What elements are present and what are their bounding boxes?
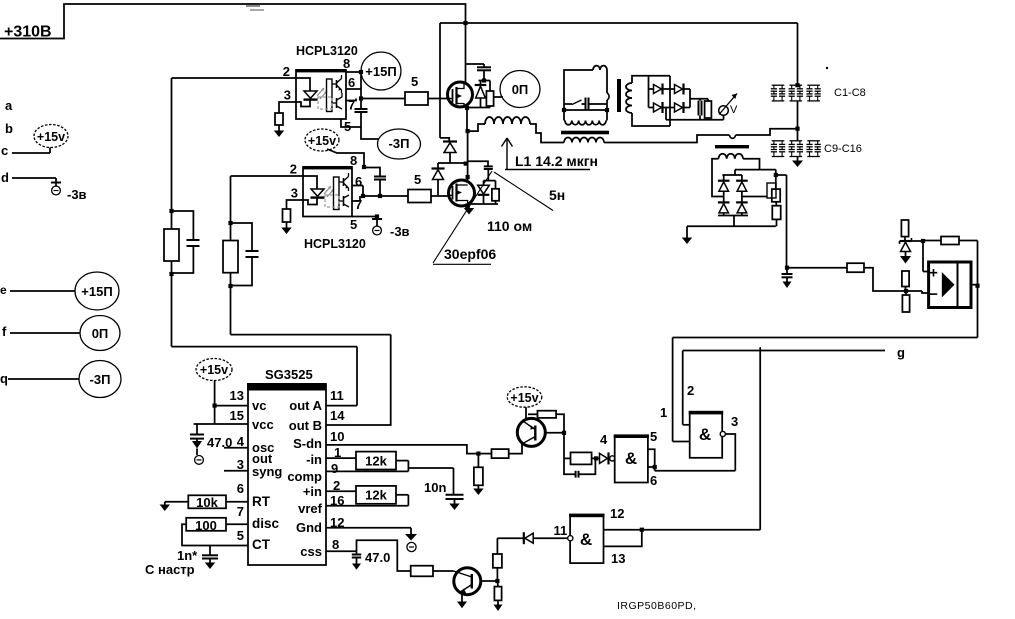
svg-text:b: b bbox=[5, 121, 13, 136]
svg-text:1: 1 bbox=[660, 405, 667, 420]
svg-text:11: 11 bbox=[554, 523, 568, 538]
svg-text:d: d bbox=[1, 170, 9, 185]
svg-text:2: 2 bbox=[283, 64, 290, 79]
svg-text:HCPL3120: HCPL3120 bbox=[304, 237, 366, 251]
svg-text:14: 14 bbox=[330, 408, 345, 423]
svg-text:&: & bbox=[625, 449, 637, 468]
svg-text:8: 8 bbox=[350, 153, 357, 168]
svg-text:12k: 12k bbox=[365, 454, 387, 469]
svg-text:SG3525: SG3525 bbox=[265, 367, 313, 382]
svg-text:V: V bbox=[730, 104, 738, 116]
svg-text:-3в: -3в bbox=[390, 224, 410, 239]
svg-text:-3П: -3П bbox=[90, 372, 111, 387]
svg-text:f: f bbox=[2, 324, 7, 339]
svg-text:+in: +in bbox=[303, 484, 322, 499]
svg-text:6: 6 bbox=[355, 174, 362, 189]
svg-text:comp: comp bbox=[287, 469, 322, 484]
svg-text:RT: RT bbox=[252, 494, 271, 509]
svg-text:+15v: +15v bbox=[200, 363, 228, 377]
svg-text:syng: syng bbox=[252, 464, 282, 479]
svg-text:3: 3 bbox=[237, 457, 244, 472]
svg-text:g: g bbox=[897, 345, 905, 360]
svg-text:Gnd: Gnd bbox=[296, 520, 322, 535]
svg-text:12: 12 bbox=[610, 506, 624, 521]
svg-text:4: 4 bbox=[600, 432, 608, 447]
svg-text:-3в: -3в bbox=[67, 187, 87, 202]
svg-text:8: 8 bbox=[332, 537, 339, 552]
svg-text:c: c bbox=[1, 143, 8, 158]
svg-text:13: 13 bbox=[230, 388, 244, 403]
svg-text:+15П: +15П bbox=[81, 284, 112, 299]
svg-text:3: 3 bbox=[731, 414, 738, 429]
svg-text:13: 13 bbox=[611, 551, 625, 566]
svg-text:&: & bbox=[580, 530, 592, 549]
svg-text:2: 2 bbox=[687, 383, 694, 398]
svg-text:out B: out B bbox=[289, 418, 322, 433]
svg-text:30epf06: 30epf06 bbox=[444, 246, 496, 262]
svg-text:+: + bbox=[929, 265, 938, 282]
svg-text:110 ом: 110 ом bbox=[487, 218, 532, 234]
svg-text:IRGP50B60PD,: IRGP50B60PD, bbox=[617, 600, 697, 612]
svg-text:1n*: 1n* bbox=[177, 548, 198, 563]
svg-text:+15v: +15v bbox=[37, 130, 65, 144]
svg-text:5: 5 bbox=[237, 528, 244, 543]
svg-text:css: css bbox=[300, 544, 322, 559]
svg-text:+15v: +15v bbox=[308, 134, 336, 148]
svg-text:4: 4 bbox=[237, 434, 245, 449]
svg-text:10: 10 bbox=[330, 429, 344, 444]
svg-text:С настр: С настр bbox=[145, 562, 195, 577]
svg-text:vref: vref bbox=[298, 501, 323, 516]
svg-text:5: 5 bbox=[414, 172, 421, 187]
svg-text:5: 5 bbox=[650, 429, 657, 444]
svg-text:0П: 0П bbox=[512, 82, 529, 97]
svg-text:5н: 5н bbox=[549, 187, 565, 203]
svg-text:7: 7 bbox=[355, 197, 362, 212]
svg-text:3: 3 bbox=[291, 186, 298, 201]
svg-text:L1 14.2 мкгн: L1 14.2 мкгн bbox=[515, 153, 598, 169]
svg-text:0П: 0П bbox=[92, 326, 109, 341]
svg-text:47.0: 47.0 bbox=[365, 550, 390, 565]
svg-text:3: 3 bbox=[284, 88, 291, 103]
svg-text:8: 8 bbox=[343, 56, 350, 71]
svg-text:C1-C8: C1-C8 bbox=[834, 87, 866, 99]
svg-text:disc: disc bbox=[252, 516, 280, 531]
svg-text:е: е bbox=[0, 283, 7, 297]
svg-text:15: 15 bbox=[230, 408, 244, 423]
svg-text:6: 6 bbox=[650, 473, 657, 488]
svg-text:5: 5 bbox=[411, 74, 418, 89]
svg-text:a: a bbox=[5, 98, 13, 113]
svg-text:12k: 12k bbox=[365, 488, 387, 503]
svg-text:&: & bbox=[699, 425, 711, 444]
svg-text:2: 2 bbox=[290, 162, 297, 177]
svg-text:C9-C16: C9-C16 bbox=[824, 143, 862, 155]
svg-text:100: 100 bbox=[195, 518, 217, 533]
svg-text:10n: 10n bbox=[424, 480, 446, 495]
svg-text:11: 11 bbox=[330, 388, 344, 403]
svg-text:S-dn: S-dn bbox=[293, 436, 322, 451]
svg-text:6: 6 bbox=[348, 75, 355, 90]
svg-text:6: 6 bbox=[237, 481, 244, 496]
svg-text:10k: 10k bbox=[196, 495, 218, 510]
svg-text:7: 7 bbox=[237, 504, 244, 519]
svg-text:vc: vc bbox=[252, 398, 266, 413]
svg-text:-in: -in bbox=[306, 452, 322, 467]
svg-text:CT: CT bbox=[252, 537, 271, 552]
svg-text:vcc: vcc bbox=[252, 417, 274, 432]
svg-text:−: − bbox=[929, 286, 938, 303]
svg-text:-3П: -3П bbox=[389, 136, 410, 151]
svg-text:5: 5 bbox=[350, 217, 357, 232]
svg-text:q: q bbox=[0, 371, 8, 386]
svg-text:9: 9 bbox=[331, 461, 338, 476]
svg-text:+15П: +15П bbox=[365, 64, 396, 79]
svg-text:out A: out A bbox=[289, 398, 322, 413]
svg-text:+15v: +15v bbox=[510, 391, 538, 405]
